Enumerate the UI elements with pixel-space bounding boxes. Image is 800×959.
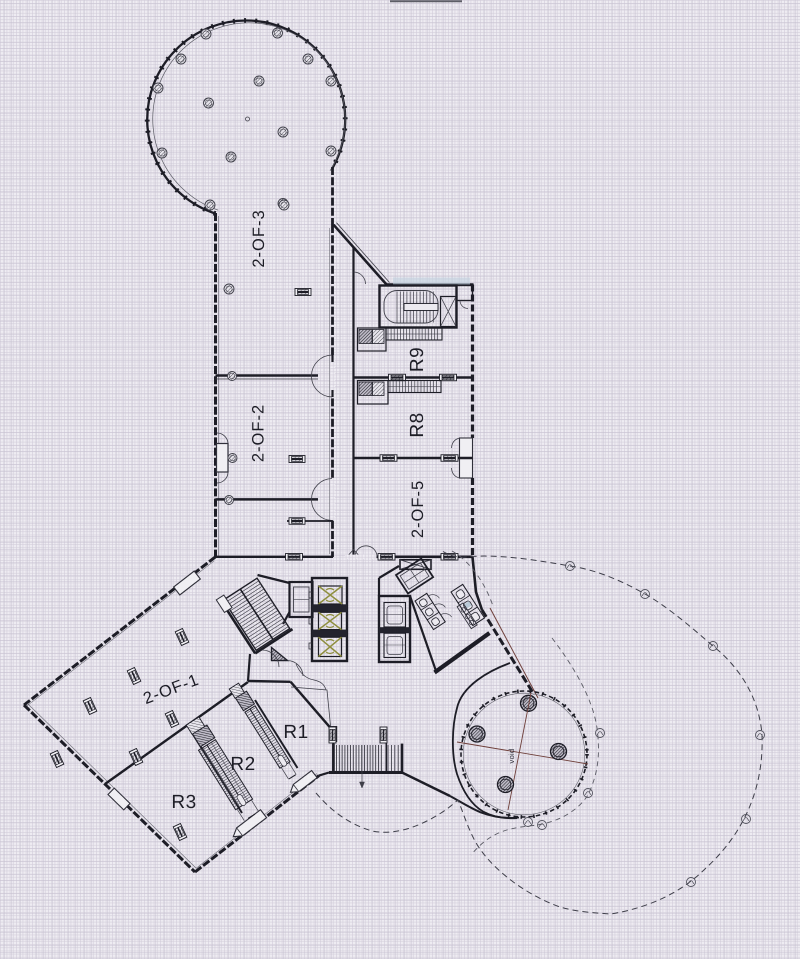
svg-text:R8: R8 [407, 412, 428, 437]
svg-text:void: void [507, 749, 516, 764]
svg-text:2-OF-2: 2-OF-2 [250, 404, 268, 462]
svg-text:R1: R1 [283, 722, 308, 743]
svg-text:R3: R3 [171, 792, 196, 813]
svg-text:2-OF-5: 2-OF-5 [409, 480, 427, 538]
svg-text:R9: R9 [407, 347, 428, 372]
svg-text:2-OF-3: 2-OF-3 [250, 209, 268, 267]
svg-text:R2: R2 [230, 754, 255, 775]
